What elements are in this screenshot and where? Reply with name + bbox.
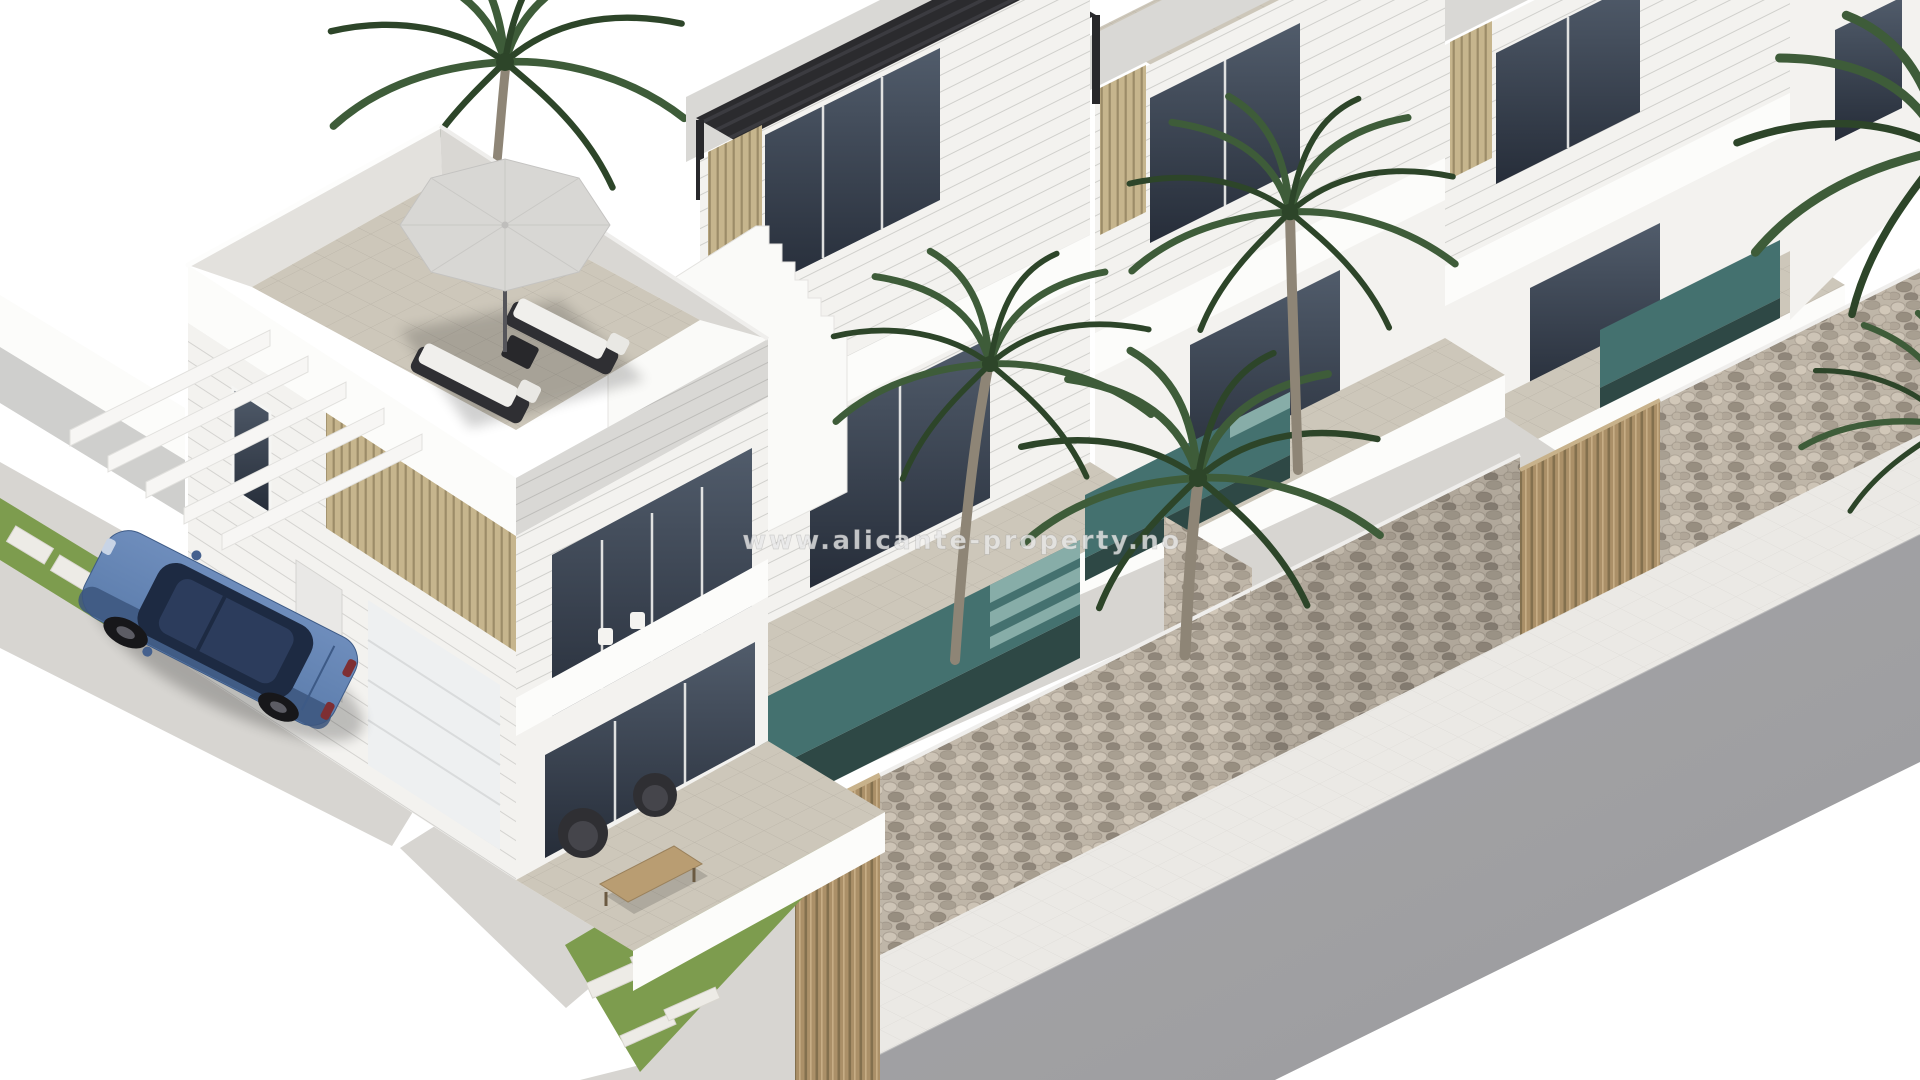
wicker-chair xyxy=(558,808,608,858)
wicker-chair xyxy=(633,773,677,817)
balcony-chair xyxy=(598,628,613,645)
house-4-wood-slats xyxy=(1450,21,1492,179)
house-3-wood-slats xyxy=(1100,65,1146,235)
architectural-render: www.alicante-property.no xyxy=(0,0,1920,1080)
watermark-text: www.alicante-property.no xyxy=(742,526,1182,556)
render-canvas: www.alicante-property.no xyxy=(0,0,1920,1080)
balcony-chair xyxy=(630,612,645,629)
